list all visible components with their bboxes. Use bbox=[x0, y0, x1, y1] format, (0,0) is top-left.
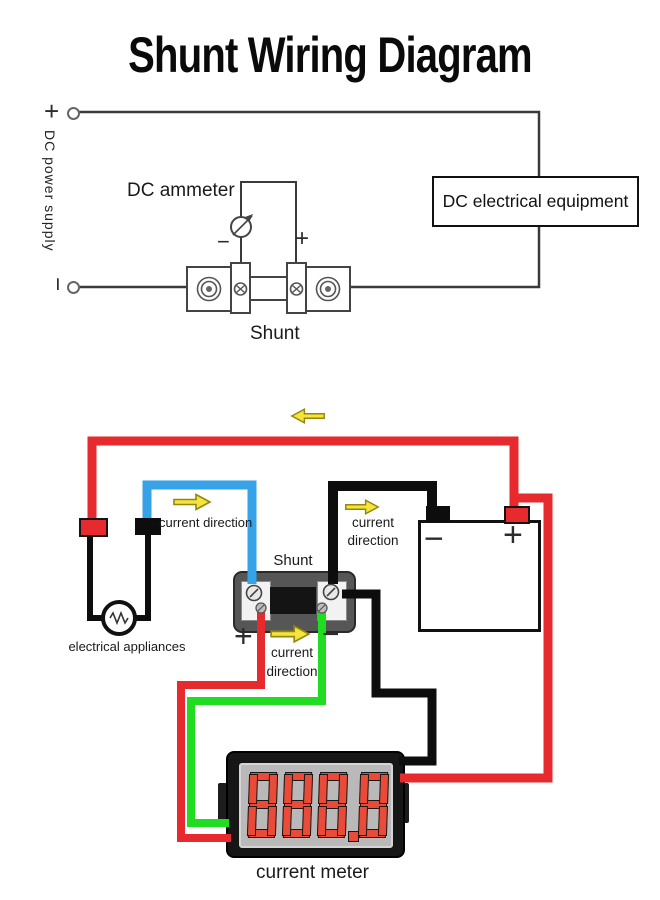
shunt-screw-left-icon bbox=[245, 584, 263, 602]
red-plug-terminal-icon bbox=[79, 518, 108, 537]
red-wire-battery-to-meter bbox=[400, 498, 548, 778]
current-direction-label-shunt-line2: direction bbox=[257, 664, 327, 679]
ammeter-label: DC ammeter bbox=[127, 180, 235, 202]
ammeter-plus-sign: + bbox=[295, 227, 309, 251]
black-wire-appliance-right bbox=[134, 534, 148, 618]
shunt-small-screw-left-icon bbox=[255, 602, 267, 614]
current-direction-label-battery-line1: current bbox=[340, 515, 406, 530]
shunt-screw-right-icon bbox=[322, 583, 340, 601]
current-direction-label-top: current direction bbox=[159, 515, 252, 530]
black-wire-shunt-to-meter bbox=[342, 594, 432, 761]
black-wire-appliance-left bbox=[90, 534, 104, 618]
appliances-label: electrical appliances bbox=[62, 639, 192, 654]
meter-label: current meter bbox=[240, 862, 385, 884]
ammeter-minus-sign: − bbox=[217, 231, 230, 253]
current-direction-arrow-battery-icon bbox=[344, 497, 380, 517]
shunt-label-top: Shunt bbox=[250, 323, 300, 345]
current-direction-label-shunt-line1: current bbox=[257, 645, 327, 660]
shunt-small-screw-right-icon bbox=[316, 602, 328, 614]
current-direction-arrow-shunt-icon bbox=[269, 622, 311, 646]
current-direction-label-battery-line2: direction bbox=[340, 533, 406, 548]
battery-plus-sign: + bbox=[503, 518, 523, 552]
shunt-plus-sign: + bbox=[234, 620, 253, 652]
shunt-minus-sign: − bbox=[322, 620, 340, 650]
bottom-circuit-wires bbox=[0, 0, 660, 900]
page-title: Shunt Wiring Diagram bbox=[66, 26, 594, 84]
shunt-label-bottom: Shunt bbox=[263, 552, 323, 569]
current-direction-arrow-blue-icon bbox=[172, 491, 212, 513]
electrical-appliance-icon bbox=[101, 600, 137, 636]
resistor-zigzag-icon bbox=[109, 611, 129, 625]
battery-minus-sign: − bbox=[424, 522, 444, 556]
current-direction-arrow-left-icon bbox=[290, 406, 326, 426]
black-plug-terminal-icon bbox=[135, 518, 161, 535]
shunt-wiring-diagram: Shunt Wiring Diagram + DC power supply −… bbox=[0, 0, 660, 900]
